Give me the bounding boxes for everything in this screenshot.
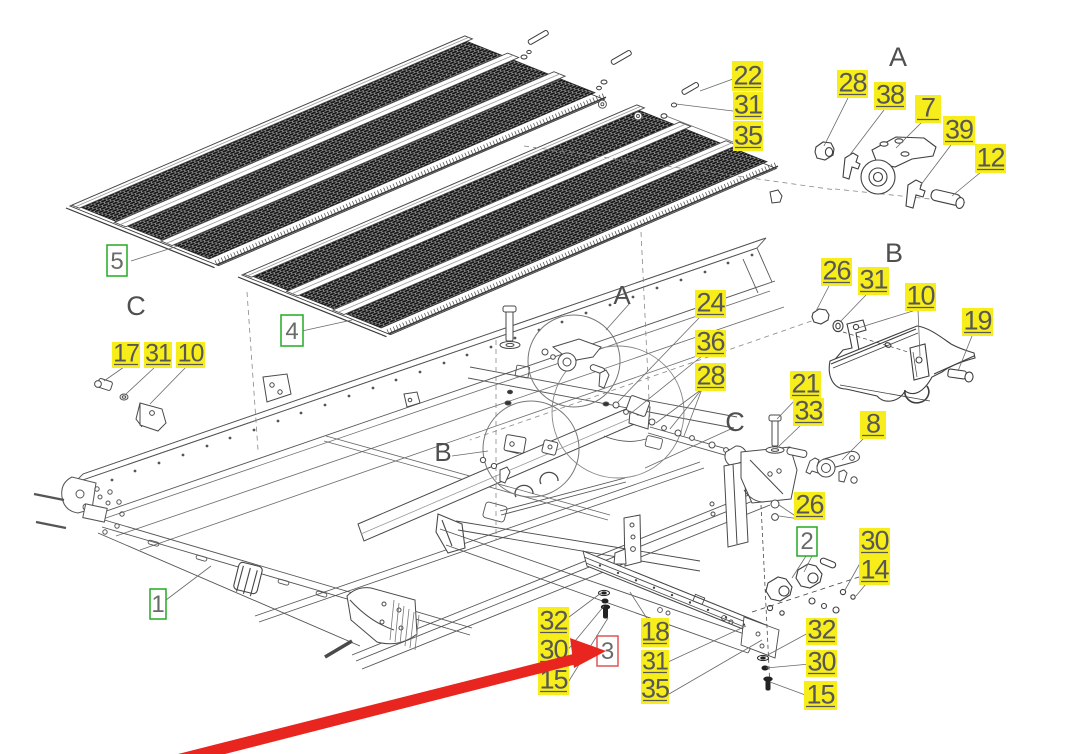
svg-text:28: 28	[696, 361, 724, 391]
svg-text:A: A	[613, 280, 631, 310]
svg-text:21: 21	[791, 369, 819, 399]
svg-text:19: 19	[963, 306, 991, 336]
svg-text:39: 39	[945, 115, 973, 145]
svg-text:31: 31	[642, 648, 668, 676]
svg-text:22: 22	[733, 61, 761, 91]
svg-text:31: 31	[859, 265, 887, 295]
svg-text:10: 10	[906, 281, 934, 311]
svg-text:1: 1	[151, 591, 164, 618]
svg-text:B: B	[434, 437, 451, 467]
svg-text:32: 32	[539, 606, 567, 636]
svg-text:C: C	[725, 407, 745, 437]
svg-text:15: 15	[806, 680, 834, 710]
svg-text:35: 35	[734, 121, 762, 151]
svg-text:7: 7	[921, 93, 935, 123]
svg-text:5: 5	[110, 248, 123, 275]
svg-text:A: A	[889, 42, 907, 72]
svg-text:12: 12	[976, 143, 1004, 173]
svg-text:C: C	[126, 291, 146, 321]
svg-text:32: 32	[807, 615, 835, 645]
svg-text:17: 17	[113, 340, 139, 368]
svg-text:24: 24	[696, 288, 725, 318]
svg-text:4: 4	[285, 318, 298, 345]
svg-text:B: B	[885, 238, 903, 268]
svg-text:31: 31	[145, 340, 171, 368]
svg-text:35: 35	[641, 674, 669, 704]
svg-text:33: 33	[794, 396, 822, 426]
svg-text:8: 8	[866, 409, 880, 439]
svg-text:38: 38	[876, 80, 904, 110]
svg-text:26: 26	[795, 490, 823, 520]
svg-text:26: 26	[822, 256, 850, 286]
svg-text:18: 18	[641, 617, 669, 647]
svg-text:30: 30	[860, 526, 888, 556]
svg-text:28: 28	[838, 68, 866, 98]
svg-text:14: 14	[860, 555, 889, 585]
svg-text:10: 10	[178, 340, 204, 368]
svg-text:36: 36	[696, 327, 724, 357]
svg-text:2: 2	[800, 528, 813, 555]
svg-text:30: 30	[807, 647, 835, 677]
svg-text:31: 31	[734, 90, 762, 120]
